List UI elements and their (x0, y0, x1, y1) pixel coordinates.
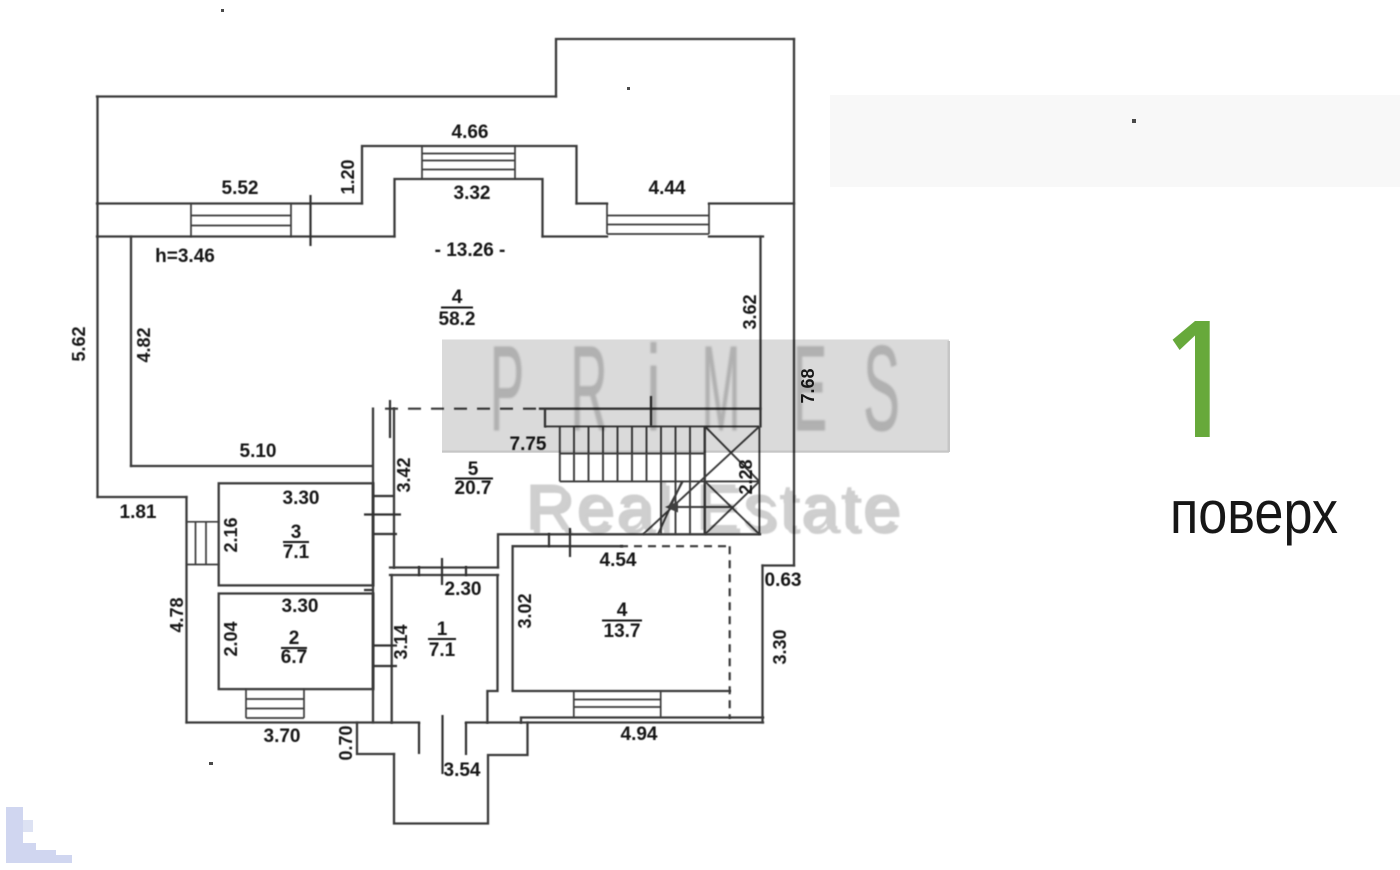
svg-text:1.20: 1.20 (338, 159, 358, 194)
svg-text:Real Estate: Real Estate (525, 470, 899, 544)
svg-text:4.44: 4.44 (649, 178, 686, 199)
svg-text:5.62: 5.62 (69, 326, 89, 361)
svg-text:0.70: 0.70 (336, 725, 356, 760)
svg-text:3.30: 3.30 (282, 596, 319, 617)
svg-text:2.04: 2.04 (221, 621, 241, 656)
svg-text:3.32: 3.32 (454, 183, 491, 204)
svg-text:1: 1 (437, 619, 448, 640)
svg-text:3.02: 3.02 (515, 593, 535, 628)
svg-text:4.78: 4.78 (167, 597, 187, 632)
svg-text:- 13.26 -: - 13.26 - (435, 240, 506, 261)
svg-text:2: 2 (289, 628, 300, 649)
svg-text:3.62: 3.62 (740, 294, 760, 329)
svg-text:2.16: 2.16 (221, 517, 241, 552)
svg-text:3.42: 3.42 (394, 457, 414, 492)
svg-text:P: P (490, 320, 524, 456)
svg-text:1.81: 1.81 (120, 502, 157, 523)
svg-text:поверх: поверх (1170, 479, 1338, 546)
svg-text:0.63: 0.63 (765, 570, 802, 591)
svg-text:13.7: 13.7 (604, 621, 641, 642)
svg-text:4.82: 4.82 (134, 327, 154, 362)
svg-text:58.2: 58.2 (439, 309, 476, 330)
svg-text:7.1: 7.1 (283, 542, 310, 563)
svg-text:3.70: 3.70 (264, 726, 301, 747)
svg-text:R: R (571, 320, 608, 456)
svg-text:4.54: 4.54 (600, 550, 637, 571)
svg-text:3: 3 (291, 522, 302, 543)
svg-text:5.10: 5.10 (240, 441, 277, 462)
svg-text:4.94: 4.94 (621, 724, 658, 745)
svg-text:20.7: 20.7 (455, 478, 492, 499)
svg-text:h=3.46: h=3.46 (155, 246, 215, 267)
svg-text:7.1: 7.1 (429, 640, 456, 661)
svg-text:3.30: 3.30 (770, 629, 790, 664)
svg-text:M: M (702, 322, 740, 457)
svg-text:7.68: 7.68 (798, 368, 818, 403)
svg-text:3.14: 3.14 (391, 624, 411, 659)
svg-text:S: S (863, 320, 899, 455)
svg-text:4.66: 4.66 (452, 122, 489, 143)
svg-text:4: 4 (452, 287, 463, 308)
svg-text:i: i (647, 321, 660, 456)
svg-text:2.30: 2.30 (445, 579, 482, 600)
svg-text:6.7: 6.7 (281, 647, 307, 668)
svg-text:5.52: 5.52 (222, 178, 259, 199)
svg-text:4: 4 (617, 600, 628, 621)
svg-text:3.54: 3.54 (444, 760, 481, 781)
svg-text:3.30: 3.30 (283, 488, 320, 509)
svg-text:5: 5 (468, 459, 479, 480)
